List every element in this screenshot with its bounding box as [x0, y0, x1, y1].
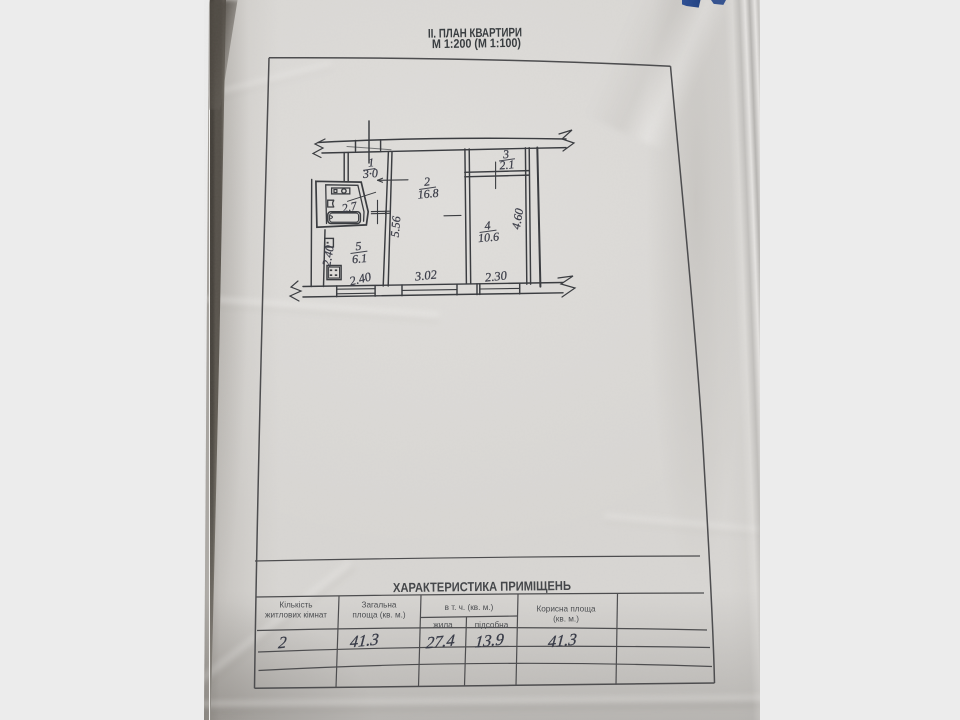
svg-text:3.02: 3.02 — [413, 267, 437, 283]
svg-text:Корисна площа: Корисна площа — [536, 605, 595, 614]
svg-text:27.4: 27.4 — [425, 630, 455, 652]
svg-text:Кількість: Кількість — [279, 601, 312, 610]
svg-text:житлових кімнат: житлових кімнат — [265, 611, 327, 620]
svg-text:16.8: 16.8 — [417, 186, 439, 202]
svg-text:підсобна: підсобна — [475, 621, 509, 630]
svg-text:4.60: 4.60 — [509, 207, 526, 230]
svg-text:жила: жила — [433, 621, 453, 630]
svg-text:10.6: 10.6 — [477, 229, 499, 245]
svg-text:М 1:200 (М 1:100): М 1:200 (М 1:100) — [432, 36, 521, 51]
svg-text:2.1: 2.1 — [499, 157, 515, 172]
svg-text:41.3: 41.3 — [547, 629, 577, 651]
svg-text:ХАРАКТЕРИСТИКА ПРИМІЩЕНЬ: ХАРАКТЕРИСТИКА ПРИМІЩЕНЬ — [393, 578, 571, 595]
svg-text:2.40: 2.40 — [319, 244, 336, 267]
svg-text:в т. ч. (кв. м.): в т. ч. (кв. м.) — [445, 603, 494, 612]
svg-text:площа (кв. м.): площа (кв. м.) — [352, 611, 406, 620]
svg-text:2: 2 — [278, 632, 288, 652]
svg-text:3·0: 3·0 — [361, 166, 378, 181]
svg-text:(кв. м.): (кв. м.) — [553, 615, 579, 624]
svg-text:Загальна: Загальна — [362, 601, 397, 610]
svg-text:6.1: 6.1 — [351, 251, 367, 266]
svg-text:13.9: 13.9 — [474, 629, 505, 651]
svg-text:5.56: 5.56 — [388, 216, 404, 238]
svg-text:2.30: 2.30 — [484, 268, 508, 284]
svg-text:41.3: 41.3 — [349, 629, 379, 651]
